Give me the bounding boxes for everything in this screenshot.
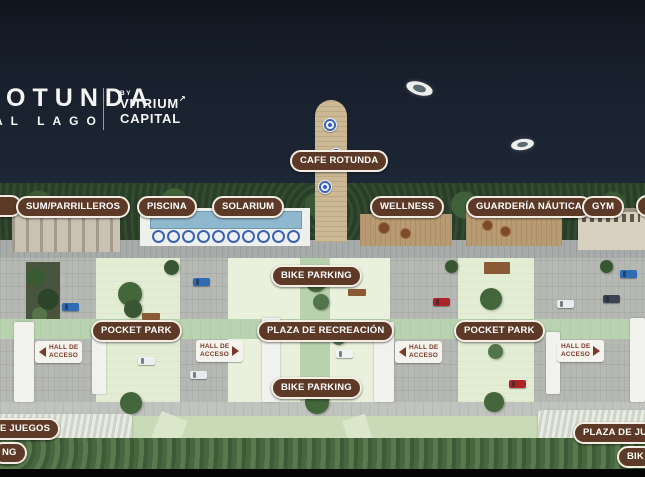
pergola	[484, 262, 510, 274]
label-bike-parking-top: BIKE PARKING	[271, 265, 362, 287]
lounge-umbrella-icon	[227, 230, 240, 243]
label-guarderia-nautica: GUARDERÍA NÁUTICA	[466, 196, 592, 218]
arrow-right-icon	[593, 346, 600, 356]
tree	[120, 392, 142, 414]
lounge-umbrella-icon	[167, 230, 180, 243]
label-plaza-juegos-left-partial: E JUEGOS	[0, 418, 60, 440]
label-sum-parrilleros: SUM/PARRILLEROS	[16, 196, 130, 218]
label-hall-de-acceso-3: HALL DEACCESO	[395, 341, 442, 363]
lounge-umbrella-icon	[257, 230, 270, 243]
car	[433, 298, 450, 306]
car	[509, 380, 526, 388]
label-bike-parking-bottom: BIKE PARKING	[271, 377, 362, 399]
car	[603, 295, 620, 303]
logo-al-lago: AL LAGO	[0, 114, 104, 128]
vitrium-capital-logo: BY VITRIUM↗ CAPITAL	[120, 90, 181, 127]
tree	[313, 294, 329, 310]
car	[138, 357, 155, 365]
deck-table	[482, 220, 493, 231]
masterplan-map: ROTUNDA AL LAGO BY VITRIUM↗ CAPITAL SUM/…	[0, 0, 645, 477]
umbrella-icon	[323, 118, 337, 132]
label-plaza-de-recreacion: PLAZA DE RECREACIÓN	[257, 320, 394, 342]
logo-arrow-icon: ↗	[179, 94, 187, 103]
tree	[480, 288, 502, 310]
bench	[142, 313, 160, 320]
bush-row	[0, 438, 645, 471]
lounge-umbrella-icon	[182, 230, 195, 243]
tree	[445, 260, 458, 273]
tree	[488, 344, 503, 359]
logo-vitrium: VITRIUM↗	[120, 97, 181, 112]
hall-building	[14, 322, 34, 402]
tree	[600, 260, 613, 273]
label-hall-de-acceso-1: HALL DEACCESO	[35, 341, 82, 363]
deck-table	[378, 222, 390, 234]
lounge-umbrella-icon	[197, 230, 210, 243]
car	[557, 300, 574, 308]
arrow-right-icon	[232, 346, 239, 356]
label-gym: GYM	[582, 196, 624, 218]
lounge-umbrella-icon	[272, 230, 285, 243]
label-hall-de-acceso-2: HALL DEACCESO	[196, 340, 243, 362]
arrow-left-icon	[39, 347, 46, 357]
hall-building	[630, 318, 645, 402]
label-bike-parking-right-partial: BIK	[617, 446, 645, 468]
label-pocket-park-right: POCKET PARK	[454, 320, 545, 342]
deck-table	[400, 228, 411, 239]
deck-table	[500, 226, 511, 237]
tree	[164, 260, 179, 275]
label-bike-parking-left-partial: NG	[0, 442, 27, 464]
label-solarium: SOLARIUM	[212, 196, 284, 218]
tree	[124, 300, 142, 318]
hall-label-text: HALL DEACCESO	[200, 343, 229, 359]
car	[193, 278, 210, 286]
lounge-umbrella-icon	[212, 230, 225, 243]
car	[190, 371, 207, 379]
label-piscina: PISCINA	[137, 196, 197, 218]
bench	[348, 289, 366, 296]
hall-label-text: HALL DEACCESO	[409, 344, 438, 360]
logo-divider	[103, 88, 104, 130]
car	[336, 350, 353, 358]
label-wellness: WELLNESS	[370, 196, 444, 218]
hall-label-text: HALL DEACCESO	[561, 343, 590, 359]
car	[62, 303, 79, 311]
bottom-black-bar	[0, 469, 645, 477]
garden-patch	[26, 262, 60, 324]
hall-label-text: HALL DEACCESO	[49, 344, 78, 360]
tree	[484, 392, 504, 412]
label-plaza-juegos-right-partial: PLAZA DE JU	[573, 422, 645, 444]
arrow-left-icon	[399, 347, 406, 357]
logo-capital: CAPITAL	[120, 112, 181, 127]
label-pocket-park-left: POCKET PARK	[91, 320, 182, 342]
label-cafe-rotunda: CAFE ROTUNDA	[290, 150, 388, 172]
car	[620, 270, 637, 278]
lounge-umbrella-icon	[242, 230, 255, 243]
lounge-umbrella-icon	[152, 230, 165, 243]
label-hall-de-acceso-4: HALL DEACCESO	[557, 340, 604, 362]
lounge-umbrella-icon	[287, 230, 300, 243]
umbrella-icon	[318, 180, 332, 194]
